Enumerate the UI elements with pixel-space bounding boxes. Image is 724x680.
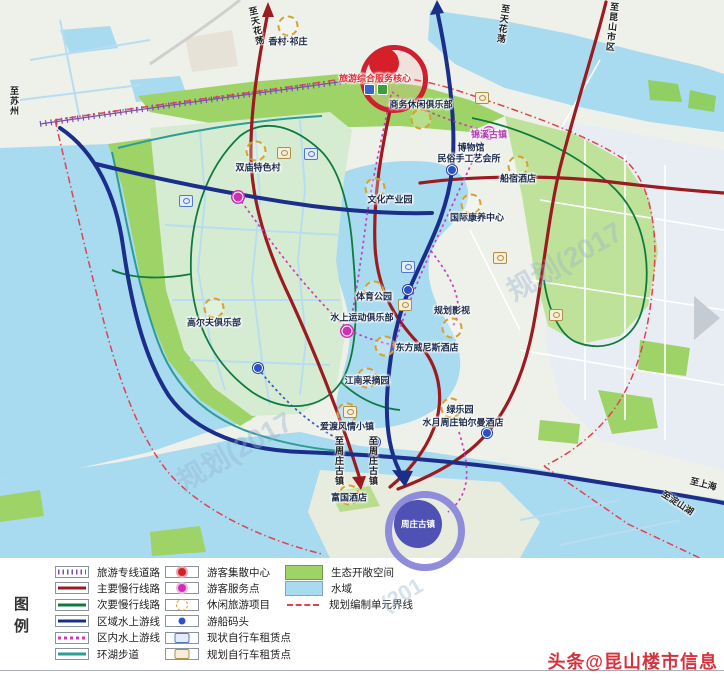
leisure-icon [442, 318, 463, 339]
dock-icon [253, 363, 263, 373]
dock-icon [482, 428, 492, 438]
poi-label: 绿乐园 [446, 403, 473, 416]
tourist-hub-label: 旅游综合服务核心 [339, 72, 411, 85]
bike-planned-icon [343, 406, 357, 418]
credit-watermark: 头条@昆山楼市信息 [547, 648, 718, 674]
leisure-icon [411, 109, 432, 130]
legend-item-bike-existing: 现状自行车租赁点 [165, 631, 291, 645]
legend-item-boundary: 规划编制单元界线 [285, 598, 413, 612]
legend-label: 水域 [331, 581, 352, 596]
service-icon [342, 326, 353, 337]
legend-label: 现状自行车租赁点 [207, 630, 291, 645]
legend-swatch-lake-trail [55, 648, 89, 660]
legend-label: 旅游专线道路 [97, 565, 160, 580]
dock-icon [447, 165, 457, 175]
parking-icon [377, 84, 388, 95]
poi-label: 国际康养中心 [450, 211, 504, 224]
bike-existing-icon [179, 195, 193, 207]
legend-swatch-boat-dock [165, 615, 199, 627]
legend-swatch-eco-space [285, 565, 323, 580]
legend-swatch-boundary [285, 600, 321, 610]
poi-label: 水上运动俱乐部 [330, 311, 393, 324]
poi-label: 爱渡风情小镇 [320, 420, 374, 433]
legend-item-inner-water: 区内水上游线 [55, 631, 160, 645]
bike-existing-icon [401, 261, 415, 273]
poi-label: 文化产业园 [367, 193, 412, 206]
bus-terminal-icon [364, 84, 375, 95]
legend-swatch-inner-water [55, 632, 89, 644]
legend-item-water-area: 水域 [285, 581, 352, 595]
legend-swatch-water-area [285, 581, 323, 596]
legend-item-service-point: 游客服务点 [165, 581, 260, 595]
legend-swatch-service-point [165, 582, 199, 594]
legend-label: 主要慢行线路 [97, 581, 160, 596]
poi-label: 体育公园 [356, 290, 392, 303]
legend-label: 游客集散中心 [207, 565, 270, 580]
poi-label: 民俗手工艺会所 [437, 152, 500, 165]
poi-label: 富国酒店 [331, 491, 367, 504]
legend-swatch-bike-existing [165, 632, 199, 644]
legend-item-secondary-slow: 次要慢行线路 [55, 598, 160, 612]
legend-swatch-regional-water [55, 615, 89, 627]
poi-label: 东方威尼斯酒店 [395, 341, 458, 354]
legend-swatch-rail [55, 566, 89, 578]
legend-label: 环湖步道 [97, 647, 139, 662]
leisure-icon [278, 16, 299, 37]
legend-swatch-leisure-project [165, 599, 199, 611]
poi-label: 船宿酒店 [500, 172, 536, 185]
legend-label: 规划编制单元界线 [329, 597, 413, 612]
service-icon [233, 192, 244, 203]
legend-label: 次要慢行线路 [97, 597, 160, 612]
legend-item-bike-planned: 规划自行车租赁点 [165, 647, 291, 661]
bike-planned-icon [549, 309, 563, 321]
poi-label: 双庙特色村 [235, 161, 280, 174]
poi-label: 香村·祁庄 [269, 35, 308, 48]
bike-planned-icon [475, 92, 489, 104]
legend-swatch-bike-planned [165, 648, 199, 660]
legend-item-regional-water: 区域水上游线 [55, 614, 160, 628]
legend-item-leisure-project: 休闲旅游项目 [165, 598, 270, 612]
legend-item-lake-trail: 环湖步道 [55, 647, 139, 661]
poi-label: 规划影视 [434, 304, 470, 317]
legend-swatch-visitor-center [165, 566, 199, 578]
legend-item-boat-dock: 游船码头 [165, 614, 249, 628]
legend-label: 区内水上游线 [97, 630, 160, 645]
legend-item-rail: 旅游专线道路 [55, 565, 160, 579]
legend-item-eco-space: 生态开敞空间 [285, 565, 394, 579]
route-destination-label: 至周庄古镇 [333, 436, 346, 486]
poi-label: 水月周庄铂尔曼酒店 [422, 416, 503, 429]
route-destination-label: 至周庄古镇 [367, 436, 380, 486]
legend-label: 游船码头 [207, 614, 249, 629]
legend-swatch-main-slow [55, 582, 89, 594]
legend-label: 区域水上游线 [97, 614, 160, 629]
zhouzhuang-label: 周庄古镇 [401, 518, 435, 530]
legend-label: 生态开敞空间 [331, 565, 394, 580]
legend-title: 图例 [10, 596, 31, 640]
chevron-right-icon[interactable] [694, 296, 720, 340]
bike-planned-icon [493, 252, 507, 264]
bike-existing-icon [304, 148, 318, 160]
leisure-icon [375, 336, 396, 357]
leisure-icon [246, 141, 267, 162]
dock-icon [403, 285, 413, 295]
route-destination-label: 至苏州 [8, 86, 21, 116]
poi-label: 江南采摘园 [344, 374, 389, 387]
bike-planned-icon [398, 299, 412, 311]
poi-label: 锦溪古镇 [471, 128, 507, 141]
legend-item-main-slow: 主要慢行线路 [55, 581, 160, 595]
legend-label: 休闲旅游项目 [207, 597, 270, 612]
planning-map: 旅游综合服务核心 周庄古镇 香村·祁庄商务休闲俱乐部双庙特色村锦溪古镇博物馆民俗… [0, 0, 724, 558]
poi-label: 高尔夫俱乐部 [187, 316, 241, 329]
legend-swatch-secondary-slow [55, 599, 89, 611]
legend-label: 规划自行车租赁点 [207, 647, 291, 662]
poi-label: 商务休闲俱乐部 [389, 98, 452, 111]
legend-label: 游客服务点 [207, 581, 260, 596]
page: 旅游综合服务核心 周庄古镇 香村·祁庄商务休闲俱乐部双庙特色村锦溪古镇博物馆民俗… [0, 0, 724, 680]
legend-item-visitor-center: 游客集散中心 [165, 565, 270, 579]
bike-planned-icon [277, 147, 291, 159]
